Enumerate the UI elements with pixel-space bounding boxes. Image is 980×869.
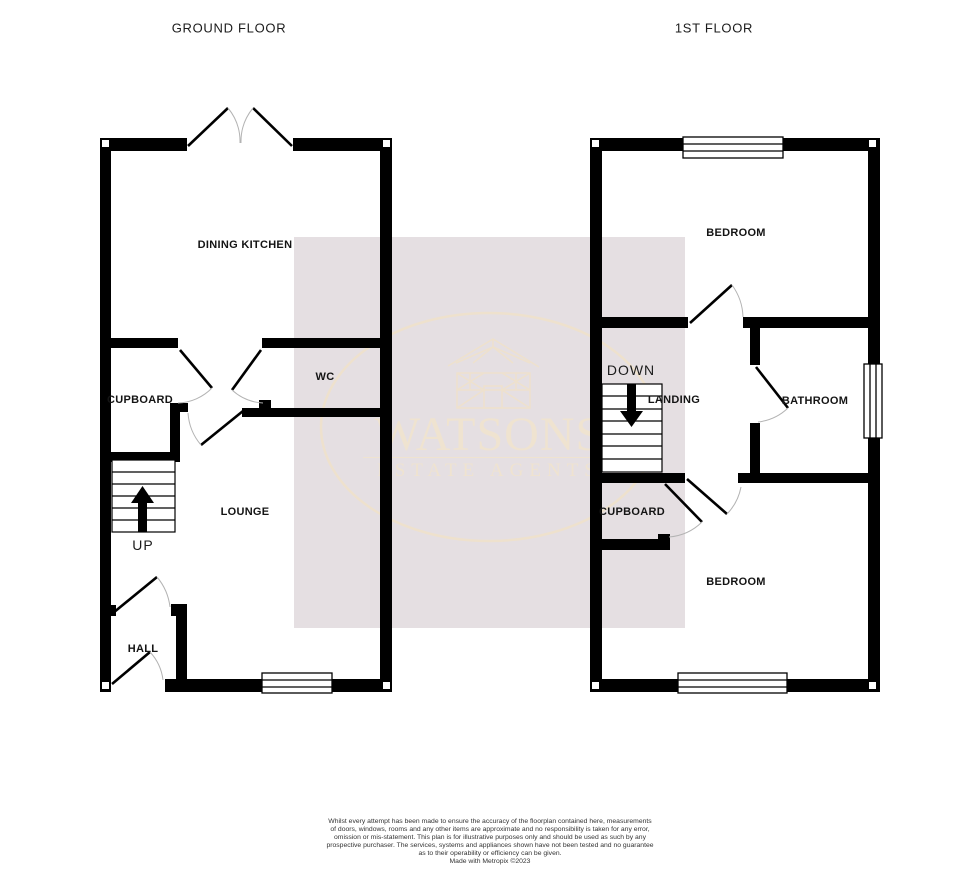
door-leaf	[232, 350, 261, 390]
wall	[738, 473, 880, 483]
door-leaf	[253, 108, 292, 146]
door-leaf	[690, 285, 732, 323]
room-label-cupboard-1f: CUPBOARD	[599, 506, 665, 518]
room-label-wc: WC	[316, 371, 335, 383]
door-swing-arc	[727, 487, 741, 514]
room-label-bedroom-back: BEDROOM	[706, 576, 766, 588]
wall	[658, 534, 670, 550]
disclaimer-line: of doors, windows, rooms and any other i…	[326, 826, 653, 834]
wall	[242, 408, 392, 417]
door-swing-arc	[178, 388, 212, 403]
door-leaf	[180, 350, 212, 388]
wall	[590, 679, 678, 692]
wall	[100, 138, 187, 151]
disclaimer-line: Whilst every attempt has been made to en…	[326, 818, 653, 826]
wall	[293, 138, 392, 151]
door-leaf	[112, 652, 150, 684]
disclaimer-line: omission or mis-statement. This plan is …	[326, 834, 653, 842]
room-label-dining-kitchen: DINING KITCHEN	[198, 239, 293, 251]
door-swing-arc	[157, 577, 170, 607]
floorplans	[0, 0, 980, 869]
window	[864, 364, 882, 438]
door-swing-arc	[232, 390, 263, 403]
wall	[590, 473, 685, 483]
stairs-down-label: DOWN	[607, 362, 655, 378]
disclaimer-line: prospective purchaser. The services, sys…	[326, 842, 653, 850]
door-swing-arc	[188, 413, 201, 445]
door-leaf	[113, 577, 157, 613]
window	[262, 673, 332, 693]
staircase-up	[112, 460, 175, 532]
first-floor-title: 1ST FLOOR	[675, 21, 753, 36]
floorplan-image: WATSONS ESTATE AGENTS	[0, 0, 980, 869]
window	[678, 673, 787, 693]
wall	[743, 317, 880, 328]
room-label-landing: LANDING	[648, 394, 700, 406]
door-swing-arc	[758, 408, 788, 422]
wall	[590, 539, 660, 550]
wall	[787, 679, 880, 692]
stairs-up-label: UP	[132, 537, 153, 553]
first-floor-plan	[590, 137, 882, 693]
wall	[590, 138, 602, 692]
wall	[100, 338, 178, 348]
disclaimer-text: Whilst every attempt has been made to en…	[326, 818, 653, 867]
wall	[750, 328, 760, 365]
wall	[100, 138, 111, 692]
wall	[262, 338, 392, 348]
room-label-bathroom: BATHROOM	[782, 395, 848, 407]
door-swing-arc	[241, 108, 253, 143]
wall	[590, 317, 688, 328]
room-label-lounge: LOUNGE	[221, 506, 270, 518]
window	[683, 137, 783, 158]
room-label-hall: HALL	[128, 643, 159, 655]
metropix-credit: Made with Metropix ©2023	[326, 858, 653, 866]
door-swing-arc	[669, 522, 702, 537]
room-label-bedroom-front: BEDROOM	[706, 227, 766, 239]
wall	[176, 604, 187, 688]
door-swing-arc	[150, 652, 163, 680]
wall	[590, 138, 683, 151]
door-swing-arc	[732, 285, 743, 317]
door-leaf	[687, 479, 727, 514]
door-swing-arc	[228, 108, 240, 143]
wall	[783, 138, 880, 151]
door-leaf	[188, 108, 228, 146]
ground-floor-title: GROUND FLOOR	[172, 21, 287, 36]
wall	[259, 400, 271, 409]
room-label-cupboard-gf: CUPBOARD	[107, 394, 173, 406]
door-leaf	[665, 484, 702, 522]
door-leaf	[201, 411, 243, 445]
ground-floor-walls	[100, 138, 392, 692]
